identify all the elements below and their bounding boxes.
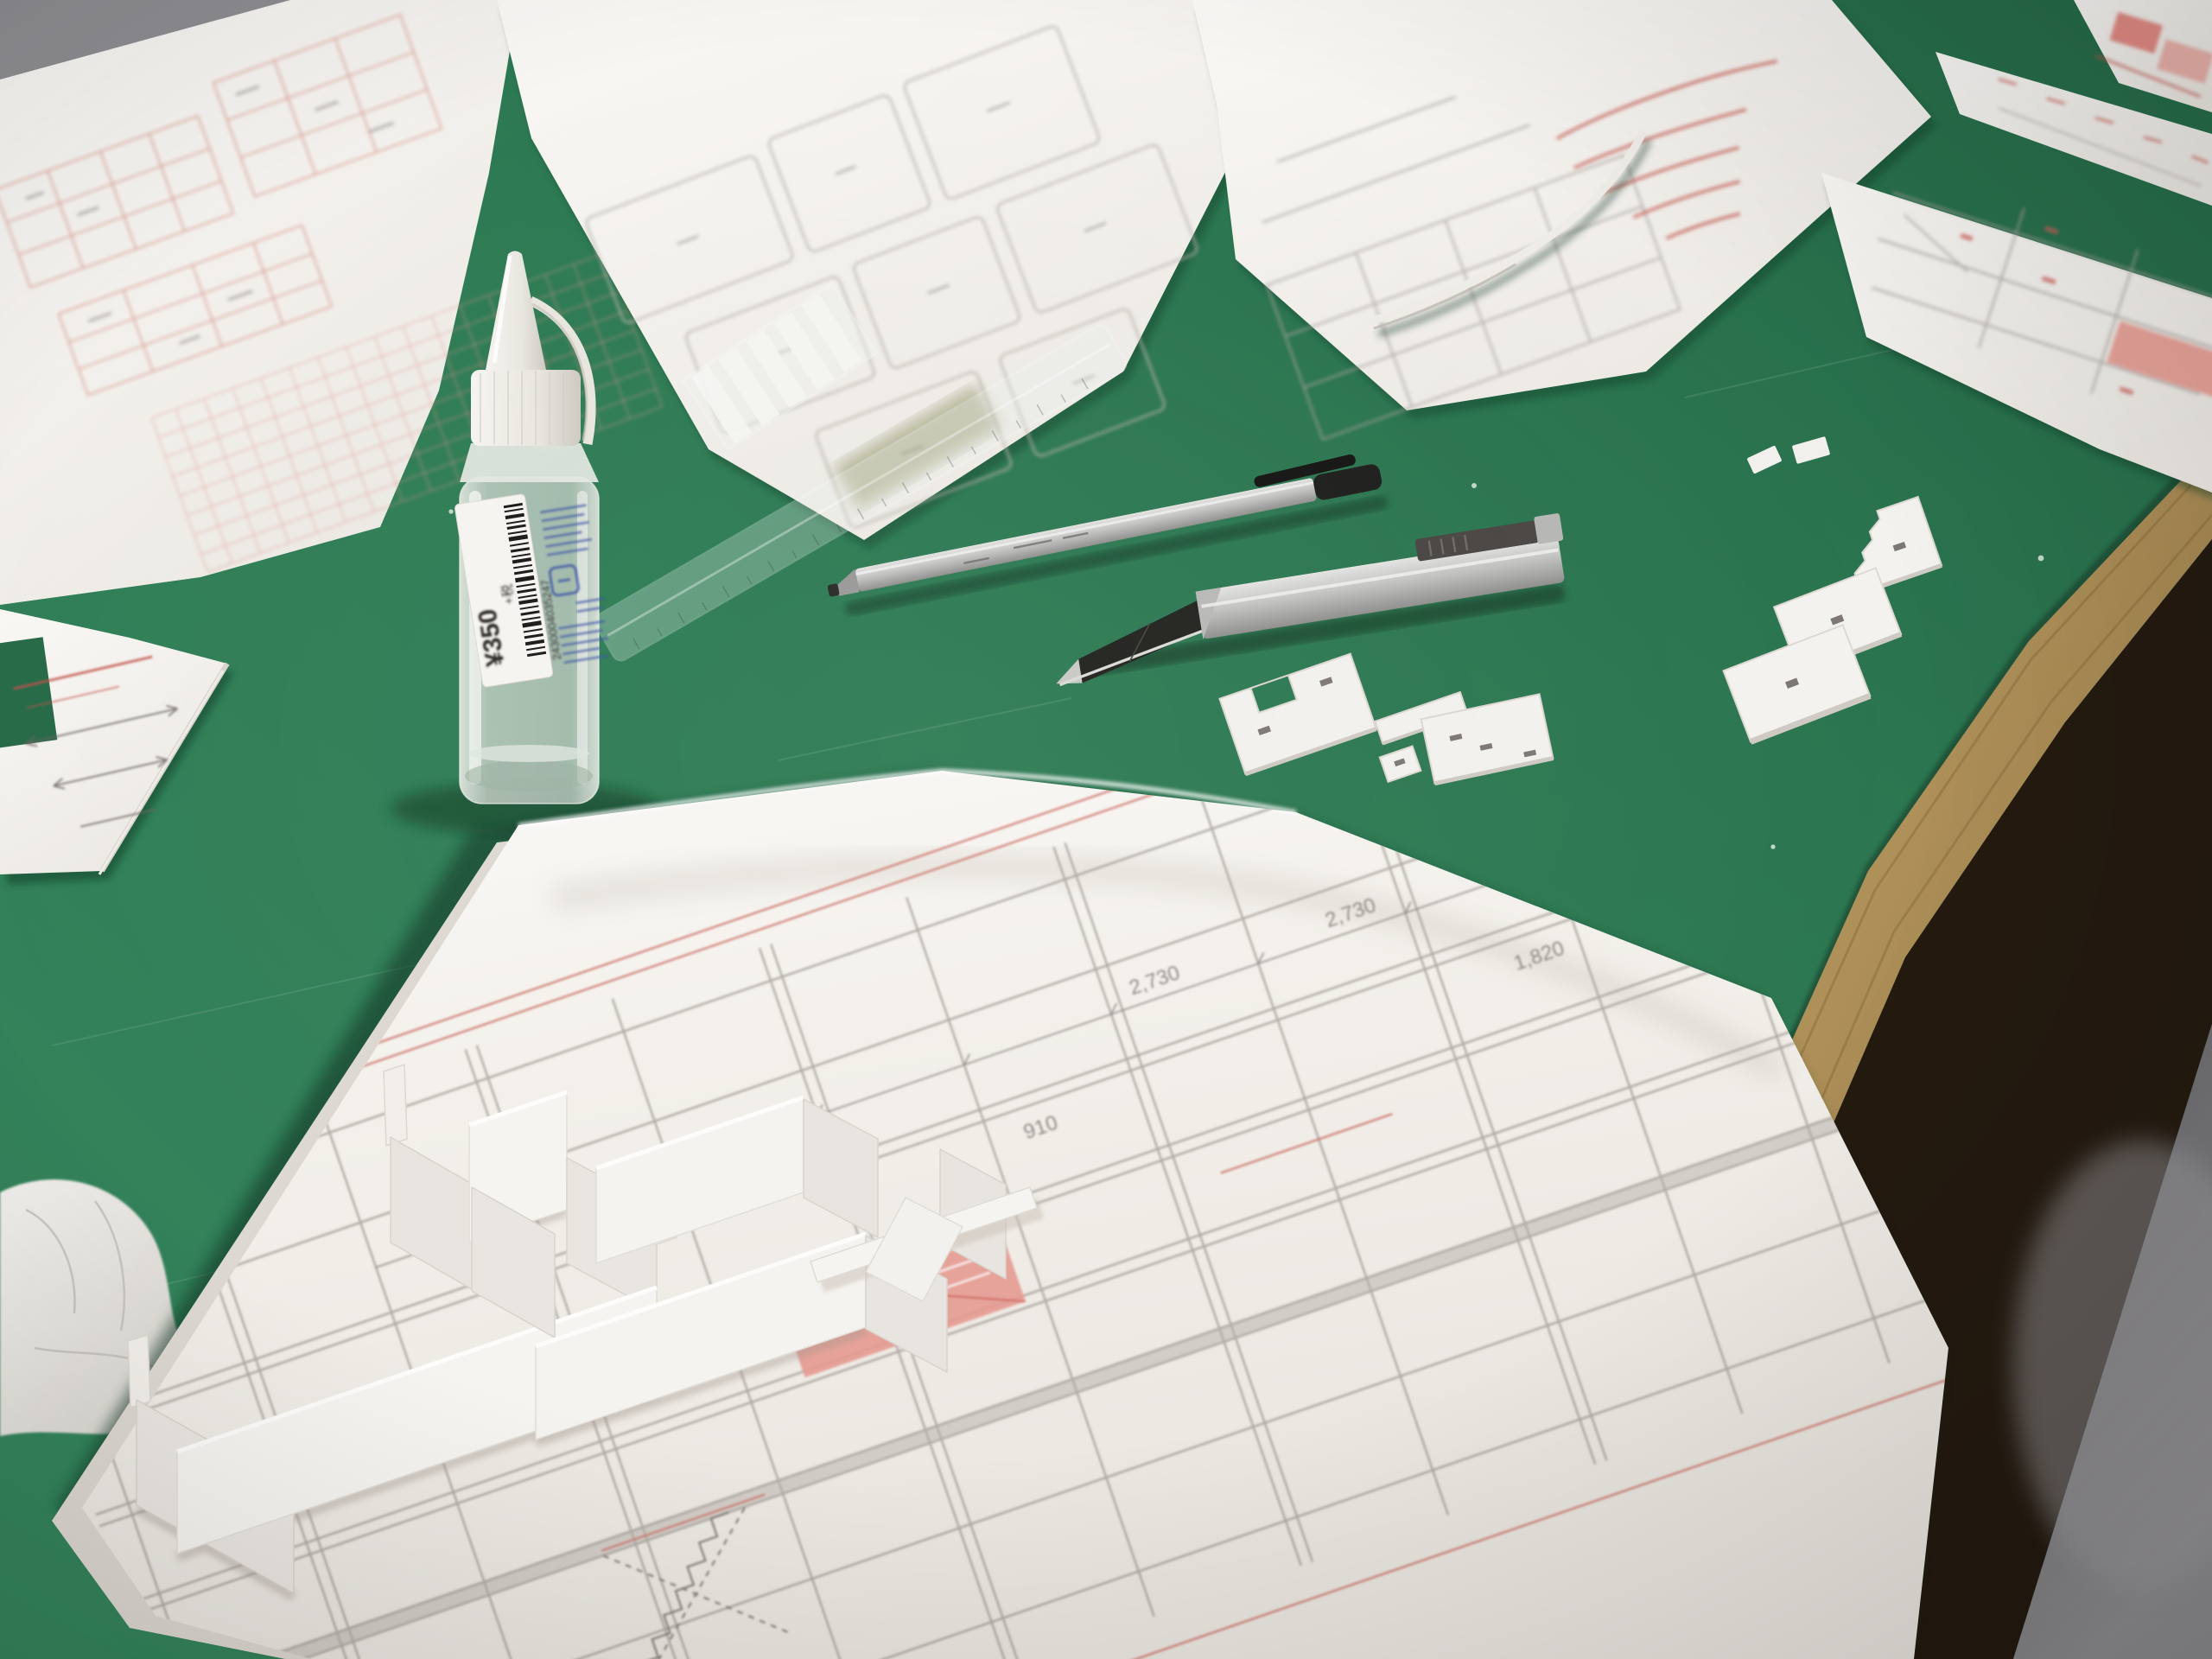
model-wall [128, 1335, 150, 1408]
workspace-photo: ¥350 +税 2430004035247 [0, 0, 2212, 1659]
photo-canvas: ¥350 +税 2430004035247 [0, 0, 2212, 1659]
model-wall [384, 1065, 407, 1146]
